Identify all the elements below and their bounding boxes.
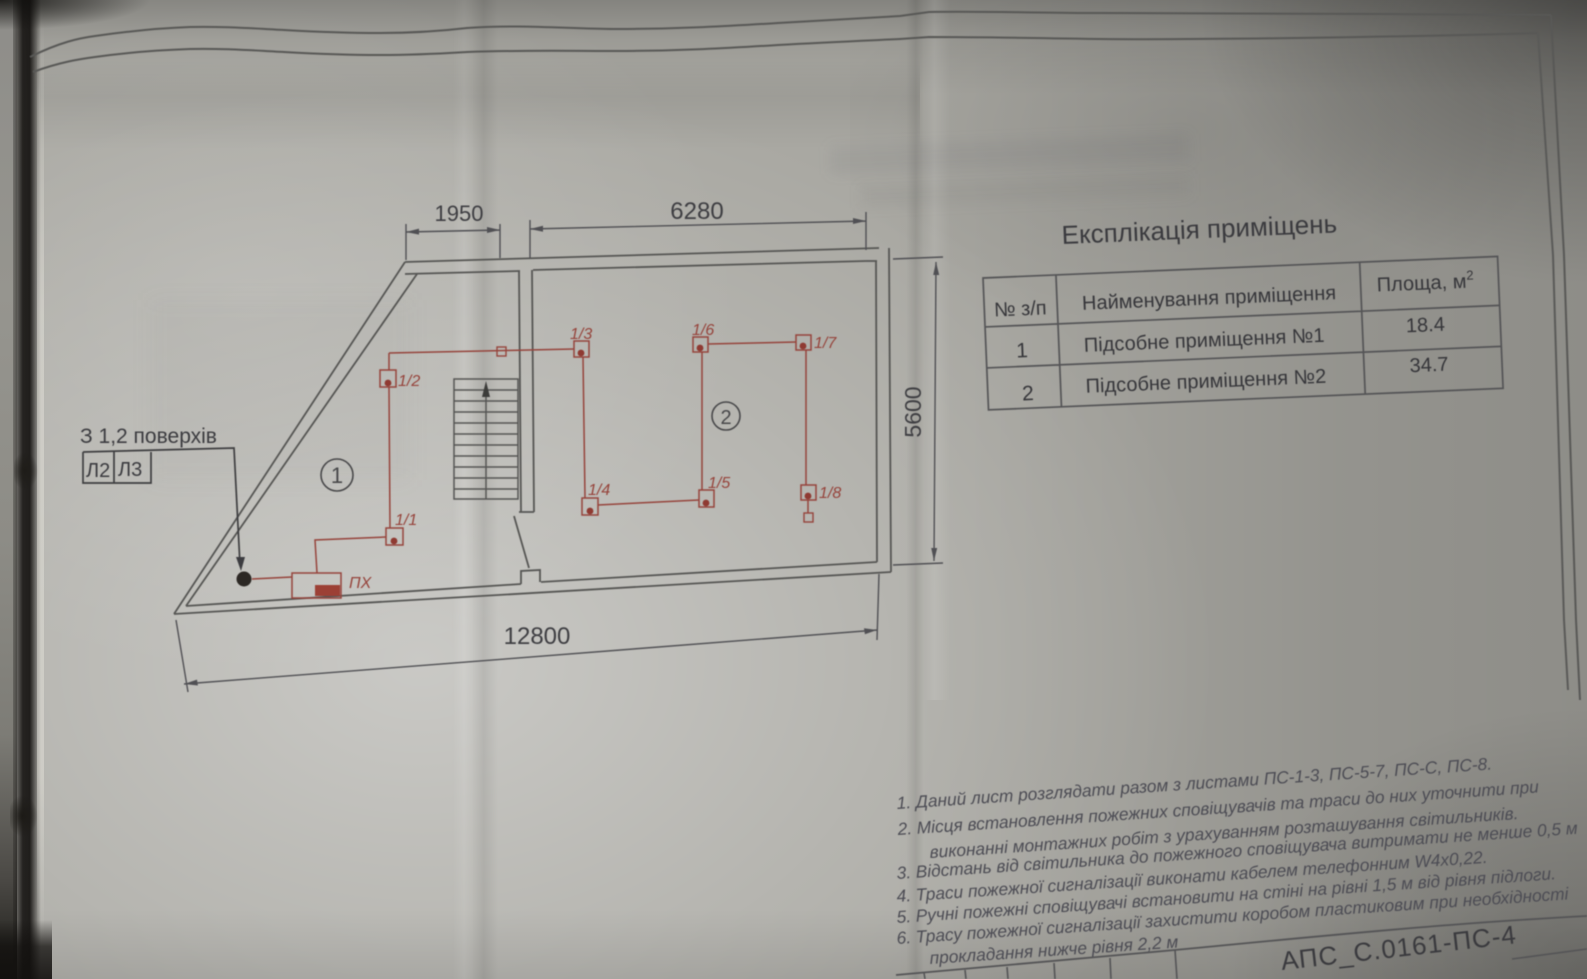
svg-text:№ з/п: № з/п (994, 297, 1047, 321)
svg-text:ПХ: ПХ (349, 575, 373, 592)
svg-text:1/5: 1/5 (708, 475, 730, 492)
svg-text:2: 2 (720, 407, 731, 429)
svg-text:2: 2 (1022, 382, 1035, 405)
svg-text:З 1,2 поверхів: З 1,2 поверхів (80, 425, 217, 448)
svg-text:Найменування приміщення: Найменування приміщення (1082, 282, 1337, 315)
svg-text:1/1: 1/1 (395, 512, 417, 529)
svg-text:1/4: 1/4 (588, 482, 610, 499)
svg-text:1: 1 (331, 463, 343, 488)
svg-text:Л2: Л2 (86, 460, 110, 482)
svg-text:34.7: 34.7 (1409, 354, 1449, 378)
svg-text:1950: 1950 (435, 201, 484, 226)
svg-text:1/2: 1/2 (398, 373, 420, 390)
svg-text:1/7: 1/7 (814, 335, 837, 352)
svg-text:Площа, м: Площа, м (1376, 271, 1467, 297)
svg-text:1/3: 1/3 (570, 326, 592, 343)
svg-text:АПС_С.0161-ПС-4: АПС_С.0161-ПС-4 (1279, 919, 1518, 976)
svg-text:5600: 5600 (900, 386, 926, 437)
svg-text:Експлікація приміщень: Експлікація приміщень (1061, 208, 1338, 250)
svg-text:Підсобне приміщення №1: Підсобне приміщення №1 (1083, 325, 1324, 357)
svg-text:1/8: 1/8 (819, 485, 841, 502)
svg-text:6280: 6280 (670, 198, 723, 225)
svg-text:18.4: 18.4 (1405, 314, 1445, 338)
svg-text:Підсобне приміщення №2: Підсобне приміщення №2 (1085, 366, 1326, 398)
svg-text:2: 2 (1466, 267, 1474, 282)
svg-text:Л3: Л3 (118, 459, 142, 481)
svg-text:12800: 12800 (504, 623, 571, 650)
svg-text:1/6: 1/6 (692, 322, 714, 339)
svg-text:1: 1 (1016, 339, 1029, 362)
